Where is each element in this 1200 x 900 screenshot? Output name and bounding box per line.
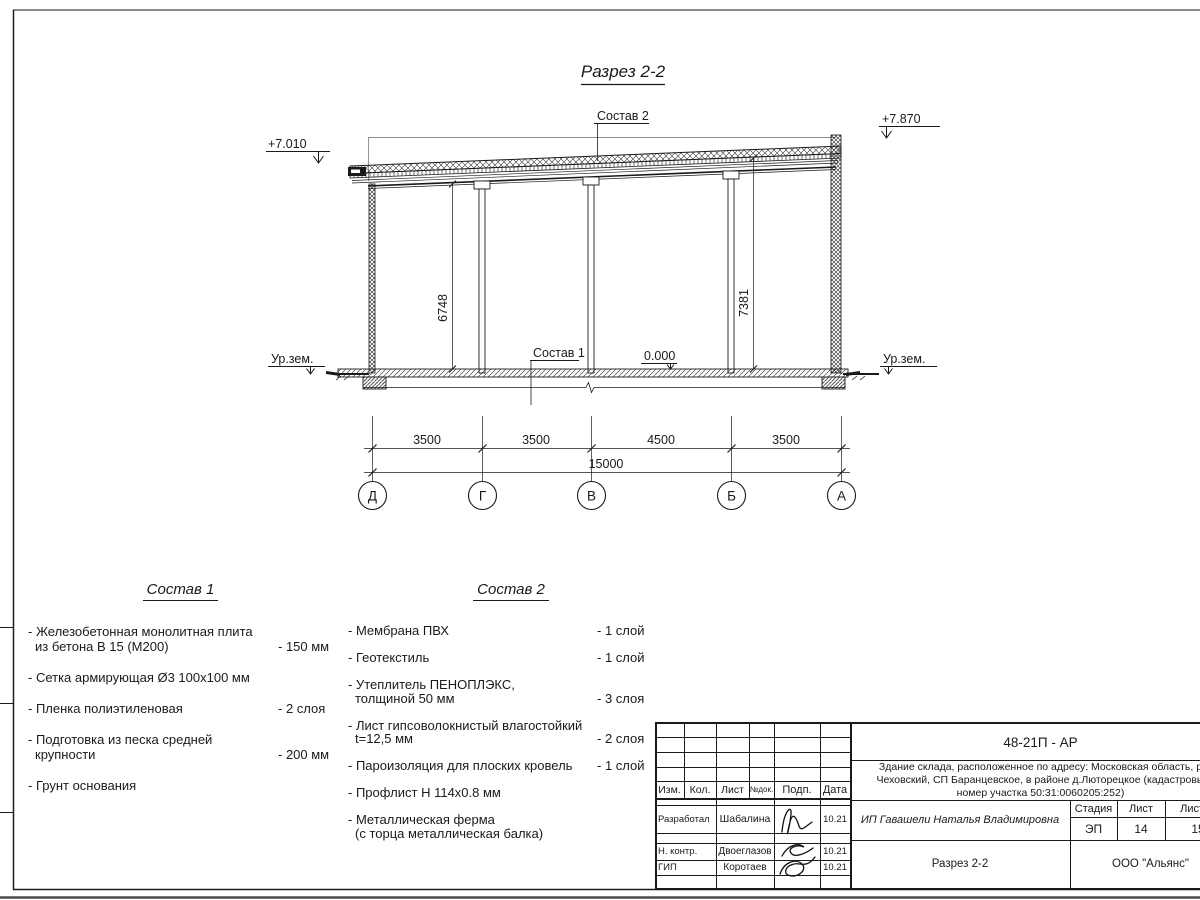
list-item: - Пароизоляция для плоских кровель - 1 с… (348, 759, 650, 773)
signature-developed (782, 809, 812, 833)
bay-dim-1: 3500 (413, 433, 441, 447)
list-item: - Сетка армирующая Ø3 100х100 мм (28, 670, 333, 685)
signature-gip (780, 857, 815, 876)
composition-list-2: Состав 2 - Мембрана ПВХ - 1 слой - Геоте… (348, 581, 650, 854)
list-item: - Мембрана ПВХ - 1 слой (348, 624, 650, 638)
date-ncontrol: 10.21 (820, 843, 850, 860)
composition-list-1: Состав 1 - Железобетонная монолитная пли… (28, 581, 333, 809)
sheets-label: Листов (1165, 800, 1200, 817)
floor-composition-label: Состав 1 (533, 346, 585, 360)
stage-label: Стадия (1070, 800, 1117, 817)
col-ndok: №док. (749, 781, 774, 798)
axis-label-b: Б (727, 489, 736, 504)
list-item: - Утеплитель ПЕНОПЛЭКС,толщиной 50 мм - … (348, 678, 650, 705)
list-item: - Грунт основания (28, 778, 333, 793)
stage-value: ЭП (1070, 817, 1117, 840)
col-list: Лист (716, 781, 749, 798)
company-name: ООО "Альянс" (1070, 840, 1200, 888)
col-data: Дата (820, 781, 850, 798)
list-item: - Профлист Н 114х0.8 мм (348, 786, 650, 800)
client-name: ИП Гавашели Наталья Владимировна (850, 800, 1070, 840)
list-item: - Железобетонная монолитная плитаиз бето… (28, 624, 333, 654)
col-izm: Изм. (655, 781, 684, 798)
building-section (326, 135, 879, 393)
bay-dim-4: 3500 (772, 433, 800, 447)
col-podp: Подп. (774, 781, 820, 798)
sheet-title: Разрез 2-2 (850, 840, 1070, 888)
axis-label-v: В (587, 489, 596, 504)
date-developed: 10.21 (820, 805, 850, 833)
name-gip: Коротаев (716, 860, 774, 875)
axis-label-a: А (837, 489, 846, 504)
axis-label-g: Г (479, 489, 487, 504)
sheet-number: 14 (1117, 817, 1165, 840)
dim-7381: 7381 (737, 289, 751, 317)
bay-dim-2: 3500 (522, 433, 550, 447)
list-item: - Металлическая ферма(с торца металличес… (348, 813, 650, 840)
right-wall (831, 135, 841, 373)
signature-ncontrol (782, 845, 813, 856)
elev-right: +7.870 (882, 112, 921, 126)
dimension-chain: 3500 3500 4500 3500 15000 (364, 416, 850, 481)
left-wall (369, 184, 375, 373)
list-item: - Лист гипсоволокнистый влагостойкийt=12… (348, 719, 650, 746)
elev-zero: 0.000 (644, 349, 675, 363)
doc-number: 48-21П - АР (850, 724, 1200, 760)
list-item: - Подготовка из песка среднейкрупности -… (28, 732, 333, 762)
floor-slab (338, 369, 848, 393)
ground-label-left: Ур.зем. (271, 352, 313, 366)
name-ncontrol: Двоеглазов (716, 843, 774, 860)
role-ncontrol: Н. контр. (655, 843, 719, 860)
columns (474, 171, 739, 373)
view-title: Разрез 2-2 (581, 62, 666, 85)
roof-composition-label: Состав 2 (597, 109, 649, 123)
sheet-label: Лист (1117, 800, 1165, 817)
sheets-total: 15 (1165, 817, 1200, 840)
axis-label-d: Д (368, 489, 377, 504)
role-developed: Разработал (655, 805, 719, 833)
list-item: - Геотекстиль - 1 слой (348, 651, 650, 665)
title-block: Изм. Кол. Лист №док. Подп. Дата Разработ… (655, 722, 1200, 890)
total-dim: 15000 (589, 457, 624, 471)
drawing-sheet: { "sheet": { "title": "Разрез 2-2" }, "d… (0, 0, 1200, 900)
ground-label-right: Ур.зем. (883, 352, 925, 366)
name-developed: Шабалина (716, 805, 774, 833)
project-description: Здание склада, расположенное по адресу: … (850, 761, 1200, 800)
axis-bubbles: Д Г В Б А (359, 482, 856, 510)
composition-1-heading: Состав 1 (28, 581, 333, 601)
signatures (774, 802, 820, 888)
view-title-text: Разрез 2-2 (581, 62, 666, 81)
bay-dim-3: 4500 (647, 433, 675, 447)
elev-left: +7.010 (268, 137, 307, 151)
left-footing (363, 377, 386, 389)
dim-6748: 6748 (436, 294, 450, 322)
role-gip: ГИП (655, 860, 719, 875)
date-gip: 10.21 (820, 860, 850, 875)
list-item: - Пленка полиэтиленовая - 2 слоя (28, 701, 333, 716)
right-footing (822, 377, 845, 389)
col-kol: Кол. (684, 781, 716, 798)
composition-2-heading: Состав 2 (360, 581, 662, 601)
